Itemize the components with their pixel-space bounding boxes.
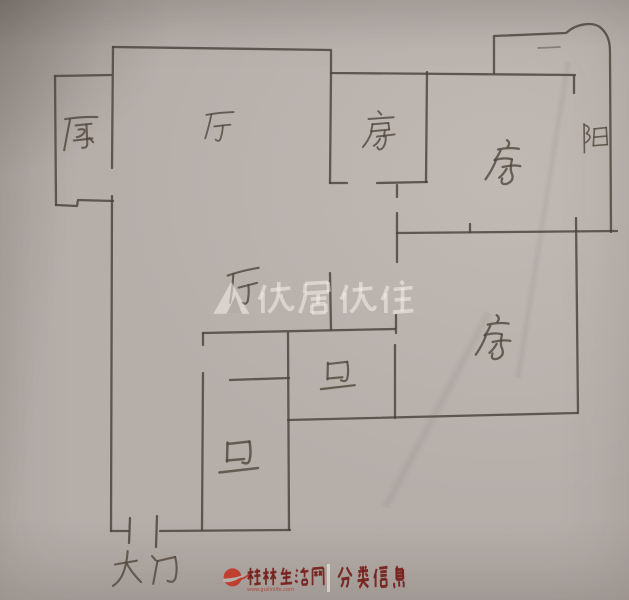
entrance-glyph [110,536,194,598]
label-hall-upper: 厅 [202,94,238,156]
watermark-bottom: 桂林生活网 www.guilinlife.com ｜ 分类信息 [220,558,412,598]
label-kitchen: 厨 [60,106,102,160]
label-balcony: 阳 [577,119,614,156]
bathroom-lower-glyph [214,428,264,494]
label-entrance: 大门 [110,536,194,598]
bathroom-upper-glyph [316,354,360,404]
kitchen-glyph [60,106,102,160]
floorplan-photo: 厨 厅 房 房 阳 [0,0,629,600]
tagline-glyphs [336,564,408,591]
bedroom-top-right-glyph [477,116,535,207]
label-bathroom-lower: 卫 [214,428,264,494]
watermark-divider-text: ｜ [220,558,221,559]
bedroom-bottom-right-glyph [468,295,524,380]
tagline-text: 分类信息 [220,558,221,559]
site-name-glyphs [246,565,326,588]
label-bedroom-bottom-right: 房 [468,295,524,380]
youju-house-logo-icon [210,277,415,318]
site-name-text: 桂林生活网 [220,558,221,559]
bedroom-top-left-glyph [358,104,402,156]
site-url-text: www.guilinlife.com [247,587,294,593]
hall-upper-glyph [202,94,238,156]
watermark-divider [327,564,330,592]
label-bathroom-upper: 卫 [316,354,360,404]
balcony-glyph [577,119,614,156]
watermark-center: 优居优住 [210,277,415,318]
label-bedroom-top-left: 房 [358,104,402,156]
label-bedroom-top-right: 房 [477,116,535,207]
